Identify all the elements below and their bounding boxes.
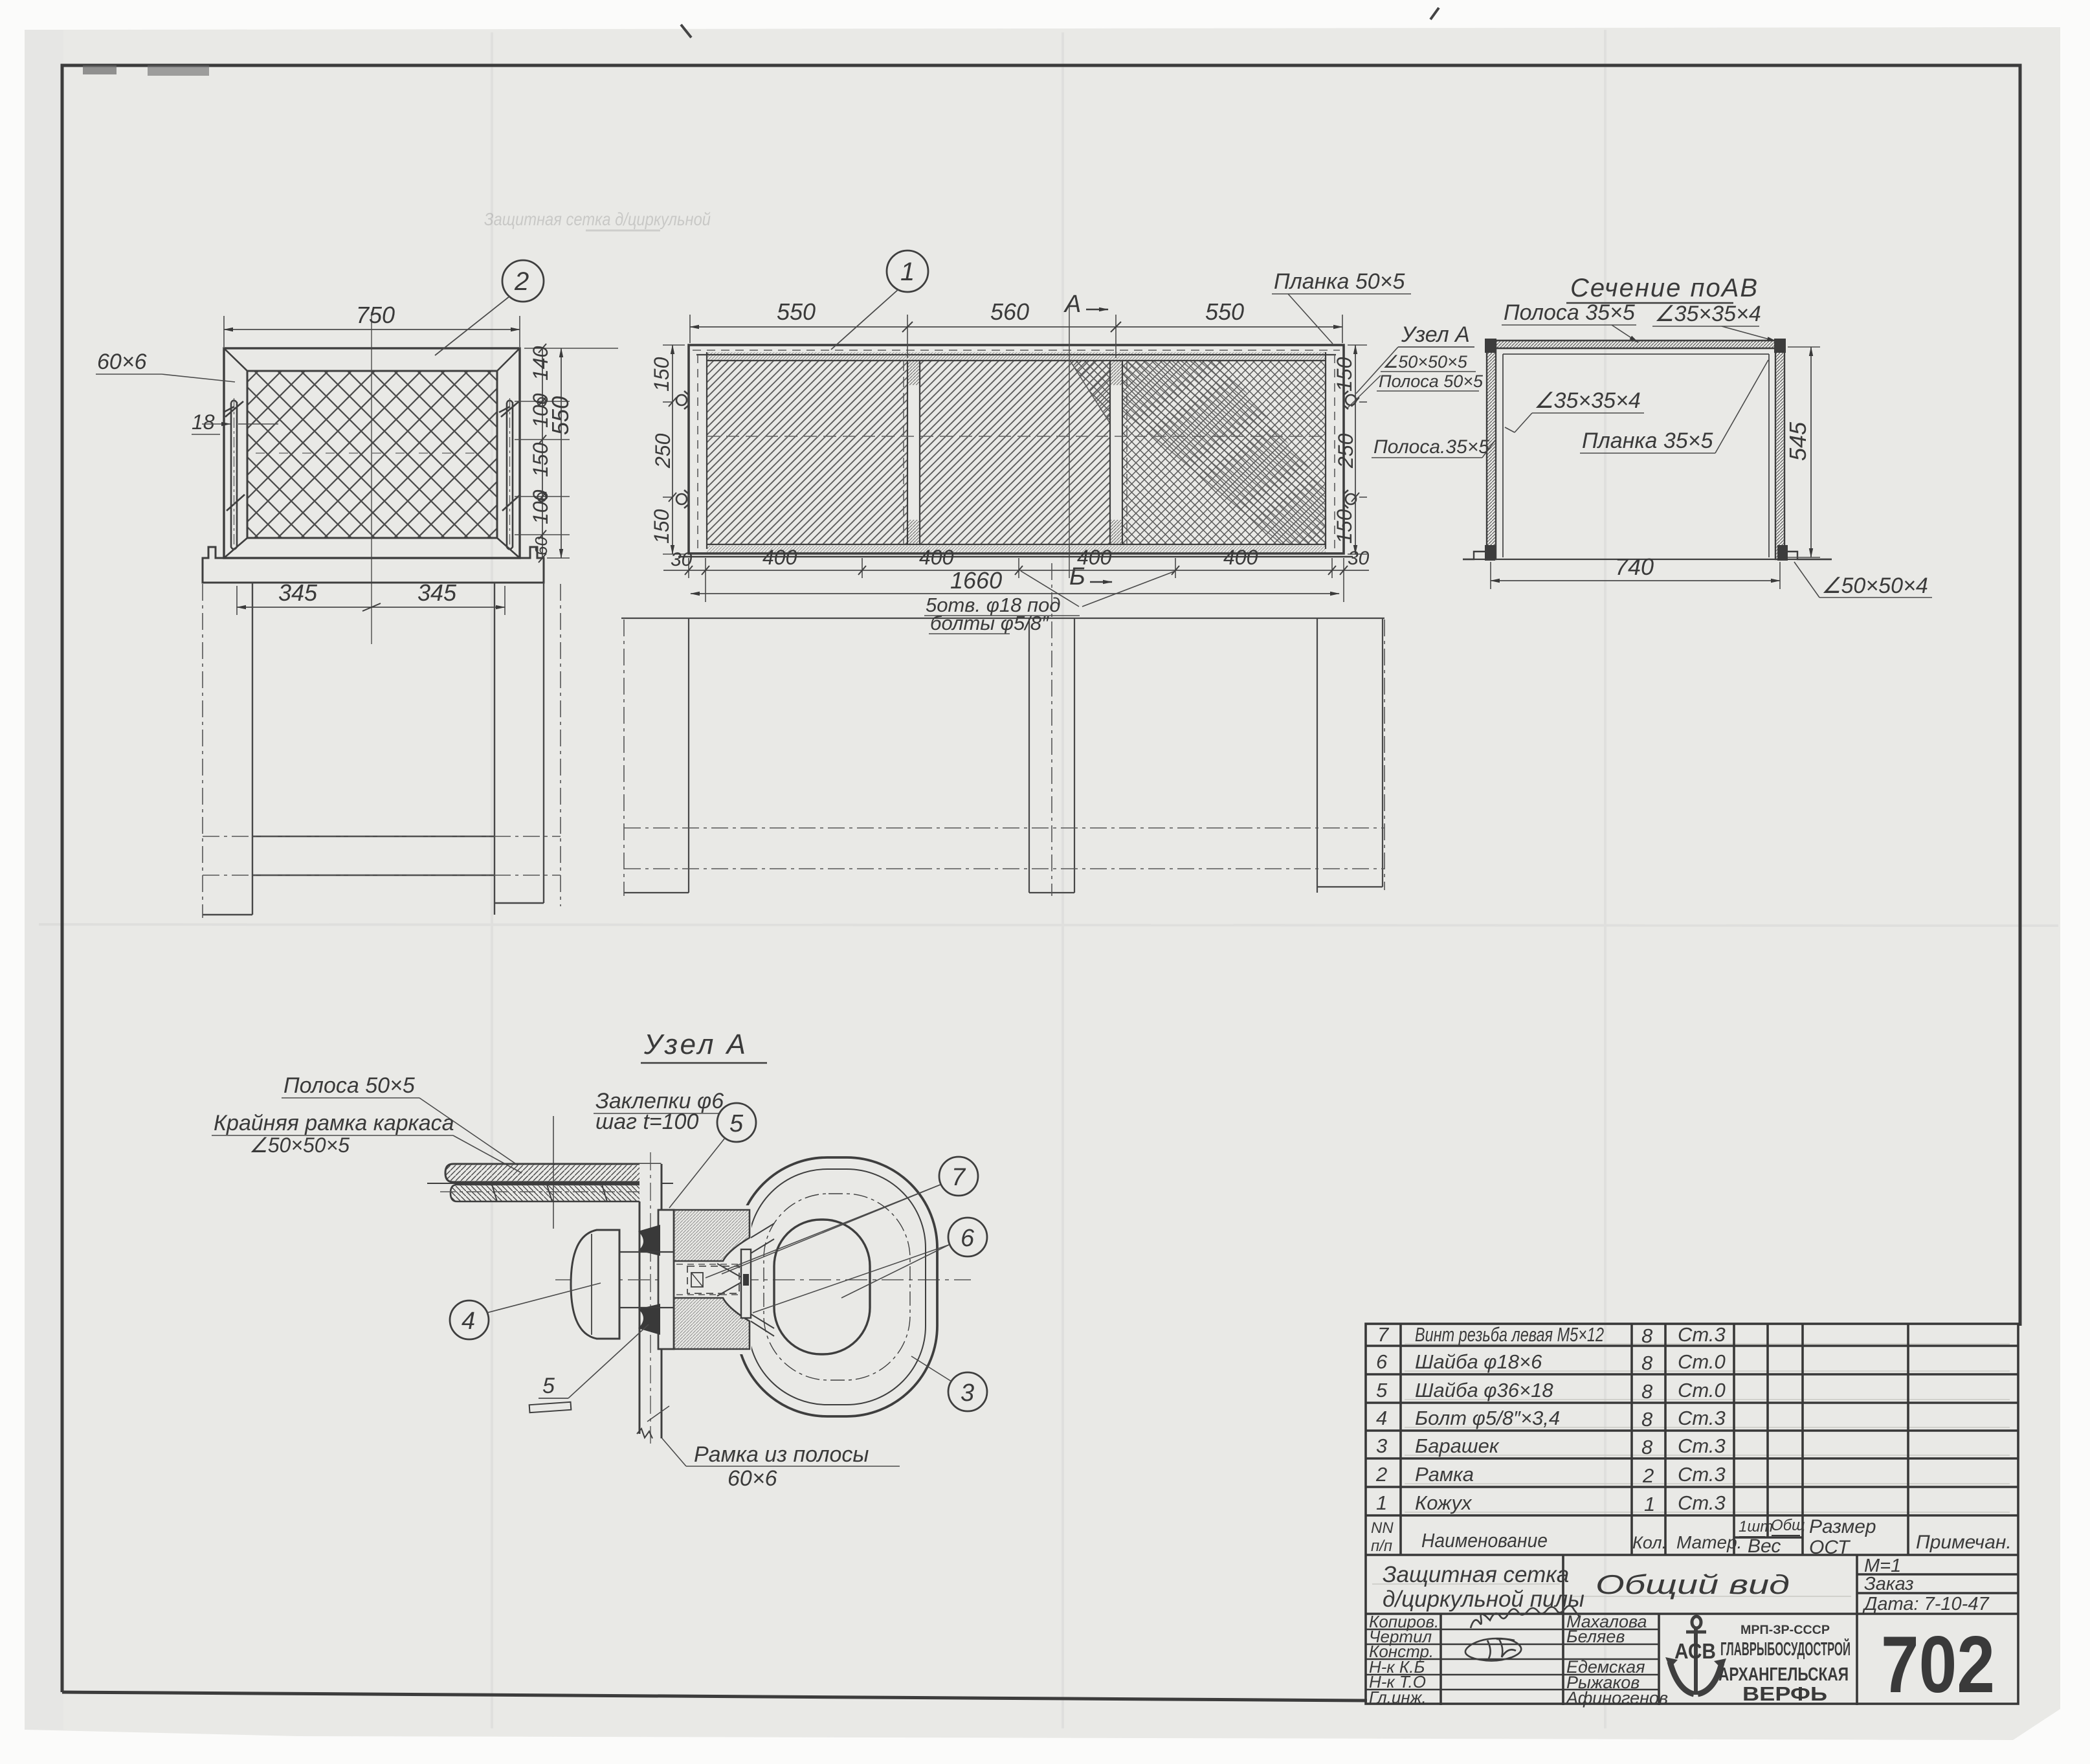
svg-text:Примечан.: Примечан. [1916,1532,2012,1553]
svg-text:Полоса 50×5: Полоса 50×5 [283,1073,415,1098]
svg-text:Болт φ5/8″×3,4: Болт φ5/8″×3,4 [1415,1407,1560,1429]
svg-text:Планка 35×5: Планка 35×5 [1582,429,1713,453]
svg-text:Заказ: Заказ [1864,1574,1914,1594]
svg-text:345: 345 [278,579,318,606]
svg-text:Кожух: Кожух [1415,1491,1473,1514]
svg-text:5: 5 [542,1374,555,1398]
svg-text:1: 1 [900,258,915,286]
svg-text:Ст.0: Ст.0 [1678,1379,1726,1401]
svg-text:Общ: Общ [1771,1517,1805,1534]
svg-text:шаг t=100: шаг t=100 [595,1110,698,1134]
svg-text:550: 550 [777,298,816,325]
svg-text:2: 2 [514,267,529,296]
svg-text:Ст.3: Ст.3 [1678,1435,1726,1457]
svg-text:740: 740 [1615,553,1654,580]
svg-text:8: 8 [1641,1352,1653,1374]
svg-text:750: 750 [356,302,395,328]
svg-text:60×6: 60×6 [97,350,147,374]
svg-text:5: 5 [729,1110,744,1137]
svg-text:8: 8 [1641,1408,1653,1431]
svg-text:1: 1 [1376,1491,1387,1514]
svg-text:6: 6 [1376,1350,1388,1373]
svg-text:Рамка: Рамка [1415,1463,1474,1486]
svg-text:Ст.0: Ст.0 [1678,1350,1726,1373]
svg-text:560: 560 [990,298,1029,325]
svg-text:345: 345 [417,579,457,606]
svg-text:Шайба φ18×6: Шайба φ18×6 [1415,1350,1542,1373]
svg-text:МРП-ЗР-СССР: МРП-ЗР-СССР [1740,1624,1830,1637]
svg-text:150: 150 [529,442,552,477]
svg-text:Барашек: Барашек [1415,1435,1500,1457]
svg-text:Планка 50×5: Планка 50×5 [1274,269,1405,294]
svg-text:400: 400 [762,546,797,569]
svg-text:АСВ: АСВ [1674,1639,1716,1663]
svg-text:30: 30 [1348,548,1370,569]
svg-text:ГЛАВРЫБОСУДОСТРОЙ: ГЛАВРЫБОСУДОСТРОЙ [1720,1638,1851,1660]
svg-text:60×6: 60×6 [728,1466,777,1491]
svg-text:∠35×35×4: ∠35×35×4 [1534,388,1641,413]
svg-text:∠50×50×5: ∠50×50×5 [1383,352,1468,372]
svg-text:Крайняя рамка каркаса: Крайняя рамка каркаса [214,1111,454,1135]
svg-text:2: 2 [1375,1463,1387,1486]
svg-text:1шт: 1шт [1739,1518,1773,1535]
svg-text:150: 150 [650,509,673,544]
svg-text:1660: 1660 [950,567,1002,594]
svg-text:Общий вид: Общий вид [1595,1569,1790,1600]
svg-text:7: 7 [951,1164,966,1191]
svg-text:Ст.3: Ст.3 [1678,1323,1726,1346]
svg-text:∠50×50×5: ∠50×50×5 [249,1133,350,1157]
svg-text:Афиногенов: Афиногенов [1565,1688,1668,1708]
svg-text:Полоса 50×5: Полоса 50×5 [1379,372,1484,391]
svg-text:7: 7 [1377,1323,1390,1346]
svg-text:6: 6 [961,1225,975,1252]
svg-text:400: 400 [919,546,954,569]
svg-text:Рамка из полосы: Рамка из полосы [694,1442,869,1467]
svg-text:400: 400 [1077,546,1112,569]
svg-text:5: 5 [1376,1379,1388,1401]
svg-text:250: 250 [1334,433,1357,469]
svg-text:Защитная сетка: Защитная сетка [1383,1562,1569,1587]
svg-text:NN: NN [1371,1519,1394,1537]
svg-text:3: 3 [961,1379,974,1407]
svg-text:Полоса 35×5: Полоса 35×5 [1504,300,1635,325]
svg-text:Гл.инж.: Гл.инж. [1369,1688,1427,1707]
svg-text:∠35×35×4: ∠35×35×4 [1654,302,1761,326]
svg-text:Узел А: Узел А [1401,322,1470,347]
svg-text:150: 150 [1333,509,1356,544]
svg-text:Дата: 7-10-47: Дата: 7-10-47 [1862,1594,1990,1614]
svg-text:Полоса.35×5: Полоса.35×5 [1373,436,1489,458]
svg-text:Беляев: Беляев [1566,1627,1625,1646]
svg-text:Ст.3: Ст.3 [1678,1463,1726,1486]
svg-text:550: 550 [547,396,573,435]
svg-text:Наименование: Наименование [1421,1529,1548,1552]
svg-text:А: А [1063,291,1081,318]
svg-text:ВЕРФЬ: ВЕРФЬ [1742,1682,1827,1705]
svg-text:30: 30 [671,549,693,570]
svg-text:Матер.: Матер. [1676,1532,1742,1552]
svg-text:60: 60 [531,537,551,555]
svg-text:400: 400 [1223,546,1258,569]
svg-text:Узел А: Узел А [643,1029,748,1060]
svg-text:Винт резьба левая М5×12: Винт резьба левая М5×12 [1415,1323,1604,1346]
svg-text:2: 2 [1642,1464,1654,1487]
svg-text:702: 702 [1881,1620,1995,1710]
svg-text:Защитная сетка д/циркульной: Защитная сетка д/циркульной [484,209,711,229]
svg-text:250: 250 [651,433,674,469]
svg-text:ОСТ: ОСТ [1809,1537,1851,1558]
svg-text:Шайба φ36×18: Шайба φ36×18 [1415,1379,1553,1401]
svg-text:п/п: п/п [1371,1537,1392,1555]
svg-text:18: 18 [192,410,215,434]
svg-text:1: 1 [1644,1493,1655,1515]
svg-text:Сечение поАВ: Сечение поАВ [1570,274,1759,302]
svg-text:4: 4 [461,1308,475,1335]
svg-text:150: 150 [650,357,673,392]
svg-text:Ст.3: Ст.3 [1678,1407,1726,1429]
svg-text:100: 100 [529,489,552,524]
svg-text:4: 4 [1376,1407,1387,1429]
svg-text:Кол.: Кол. [1632,1533,1667,1552]
svg-text:545: 545 [1784,421,1811,461]
svg-text:Размер: Размер [1809,1516,1876,1537]
svg-text:Вес: Вес [1748,1535,1781,1557]
svg-text:8: 8 [1641,1436,1653,1458]
svg-text:Ст.3: Ст.3 [1678,1491,1726,1514]
svg-text:8: 8 [1641,1380,1653,1403]
svg-text:150: 150 [1333,357,1356,392]
svg-text:3: 3 [1376,1435,1387,1457]
svg-text:140: 140 [529,346,552,381]
svg-text:8: 8 [1641,1324,1653,1347]
svg-text:∠50×50×4: ∠50×50×4 [1821,574,1928,598]
svg-text:550: 550 [1205,298,1244,325]
